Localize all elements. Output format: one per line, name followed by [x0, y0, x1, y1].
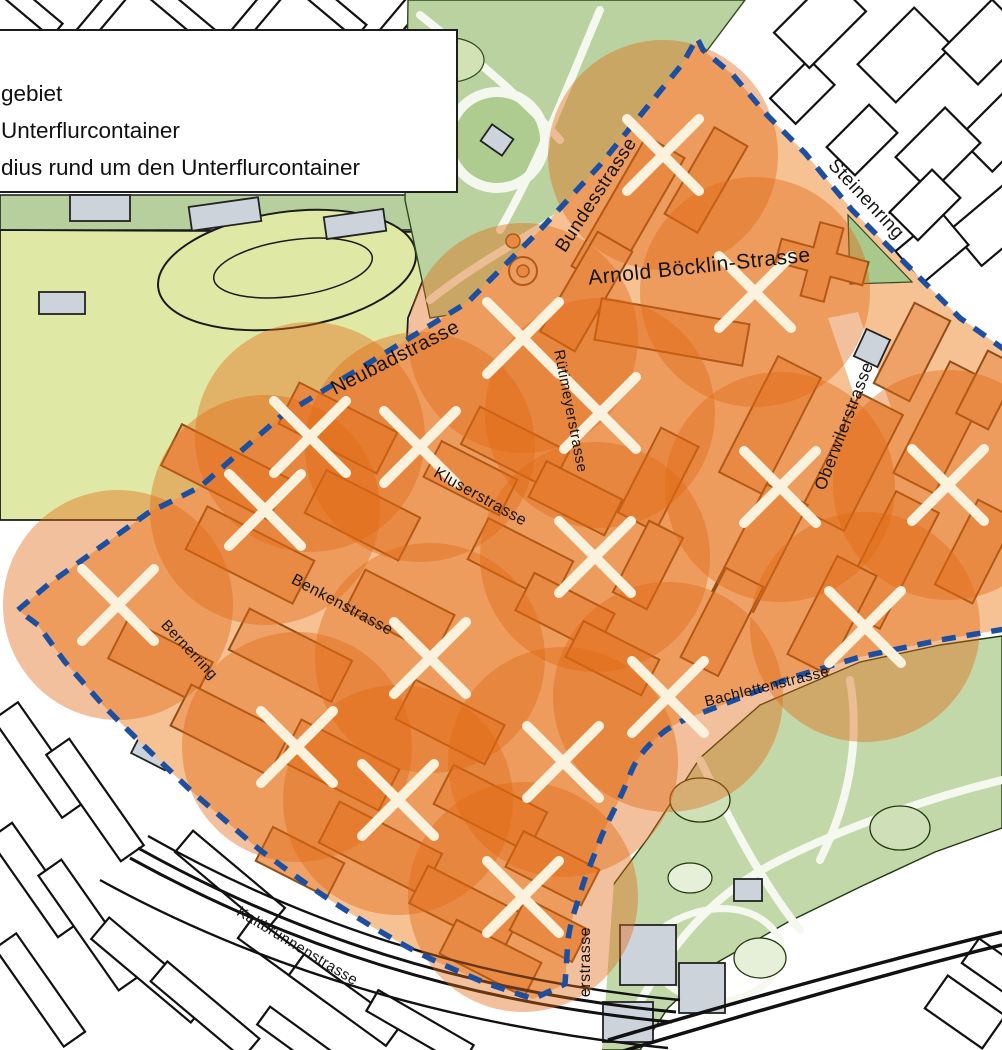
legend: gebiet Unterflurcontainer dius rund um d…	[0, 29, 458, 193]
street-label-erstrasse: erstrasse	[577, 927, 594, 997]
legend-item-container: Unterflurcontainer	[1, 112, 456, 149]
legend-item-radius: dius rund um den Unterflurcontainer	[1, 149, 456, 186]
legend-item-zone: gebiet	[1, 75, 456, 112]
map-screenshot: Bundesstrasse Arnold Böcklin-Strasse Ste…	[0, 0, 1002, 1050]
